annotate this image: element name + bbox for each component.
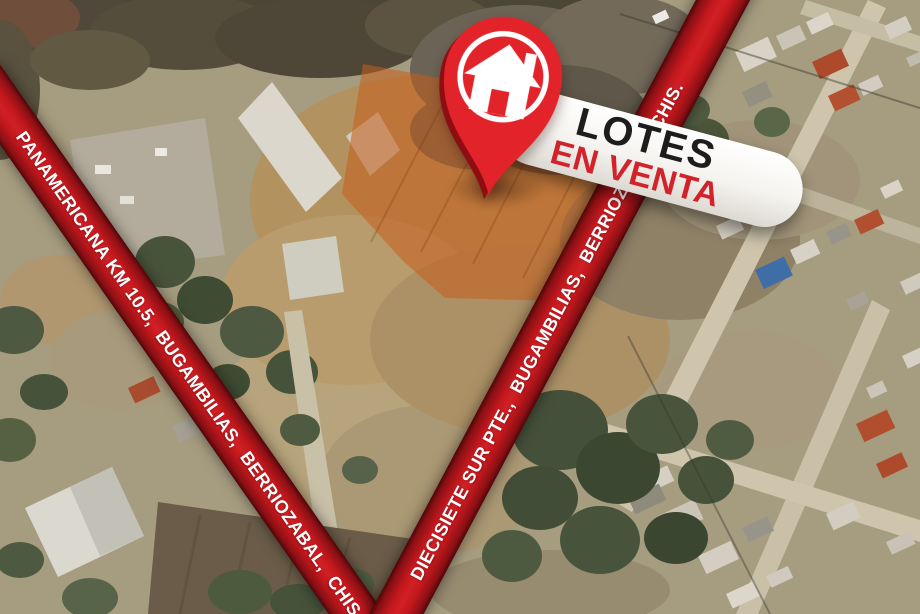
lots-for-sale-map-ad: PANAMERICANA KM 10.5, BUGAMBILIAS, BERRI… xyxy=(0,0,920,614)
location-pin xyxy=(408,2,581,219)
pin-graphic xyxy=(408,2,581,219)
